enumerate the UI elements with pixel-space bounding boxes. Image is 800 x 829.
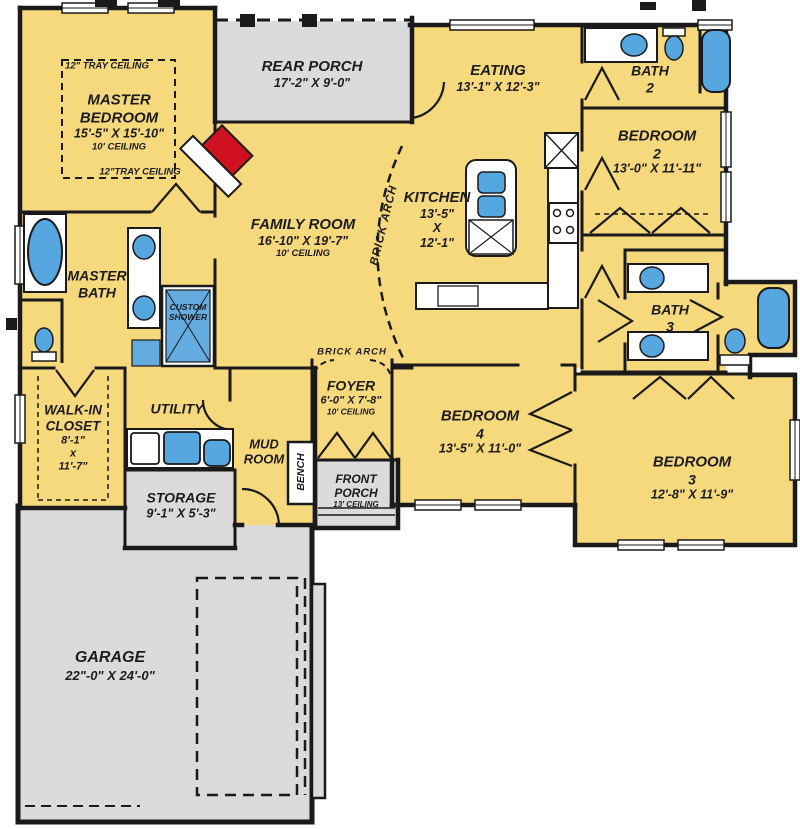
room-label-front-porch: FRONT PORCH 13' CEILING <box>333 472 378 510</box>
tray-ceiling-label-top: 12" TRAY CEILING <box>65 60 149 71</box>
washer-icon <box>164 432 200 464</box>
room-label-mud-room: MUD ROOM <box>244 437 284 468</box>
master-sink2-icon <box>133 296 155 320</box>
porch-post <box>240 14 255 27</box>
room-label-walk-in-closet: WALK-IN CLOSET 8'-1" x 11'-7" <box>44 403 102 474</box>
kitchen-sink-icon <box>478 172 505 193</box>
brick-arch-label-foyer: BRICK ARCH <box>317 346 387 357</box>
bath3-toilet-icon <box>725 329 745 353</box>
room-label-storage: STORAGE 9'-1" X 5'-3" <box>146 489 215 520</box>
room-label-bath2: BATH 2 <box>631 62 669 95</box>
kitchen-counter-bottom <box>416 283 548 309</box>
label-bench: BENCH <box>295 453 307 490</box>
kitchen-sink2-icon <box>478 196 505 217</box>
room-label-master-bath: MASTER BATH <box>67 267 126 300</box>
floor-plan: BRICK ARCH MASTER BEDROOM 15'-5" X 15'-1… <box>0 0 800 829</box>
sink-basin-icon <box>204 440 230 466</box>
garage-structure <box>18 506 325 822</box>
bath3-tub-icon <box>758 288 789 348</box>
bath2-tub-icon <box>702 30 730 92</box>
dishwasher-icon <box>438 286 478 306</box>
master-sink1-icon <box>133 235 155 259</box>
shower-entry <box>132 340 160 366</box>
room-label-family-room: FAMILY ROOM 16'-10" X 19'-7" 10' CEILING <box>251 216 355 260</box>
room-label-bedroom2: BEDROOM 2 13'-0" X 11'-11" <box>613 128 701 177</box>
bath3-sink1-icon <box>640 267 664 289</box>
room-label-garage: GARAGE 22"-0" X 24'-0" <box>65 649 155 683</box>
room-label-utility: UTILITY <box>151 401 204 418</box>
room-label-bedroom4: BEDROOM 4 13'-5" X 11'-0" <box>439 408 521 457</box>
room-label-eating: EATING 13'-1" X 12'-3" <box>456 62 539 94</box>
label-custom-shower: CUSTOM SHOWER <box>169 302 207 322</box>
bath2-sink-icon <box>621 34 647 56</box>
room-label-kitchen: KITCHEN 13'-5" X 12'-1" <box>404 189 471 251</box>
room-label-master-bedroom: MASTER BEDROOM 15'-5" X 15'-10" 10' CEIL… <box>57 91 181 152</box>
room-label-bath3: BATH 3 <box>651 301 689 334</box>
garage-side-tab <box>312 584 325 798</box>
stove-icon <box>549 203 578 243</box>
freezer-icon <box>131 433 159 464</box>
bath3-sink2-icon <box>640 335 664 357</box>
master-toilet-icon <box>35 328 53 352</box>
room-label-foyer: FOYER 6'-0" X 7'-8" 10' CEILING <box>321 377 382 417</box>
utility-fixtures <box>127 429 233 468</box>
room-label-rear-porch: REAR PORCH 17'-2" X 9'-0" <box>262 58 363 90</box>
bath2-toilet-icon <box>665 36 683 60</box>
tray-ceiling-label-bottom: 12"TRAY CEILING <box>99 166 180 177</box>
master-tub-icon <box>28 219 62 285</box>
porch-post <box>302 14 317 27</box>
room-label-bedroom3: BEDROOM 3 12'-8" X 11'-9" <box>651 454 733 503</box>
